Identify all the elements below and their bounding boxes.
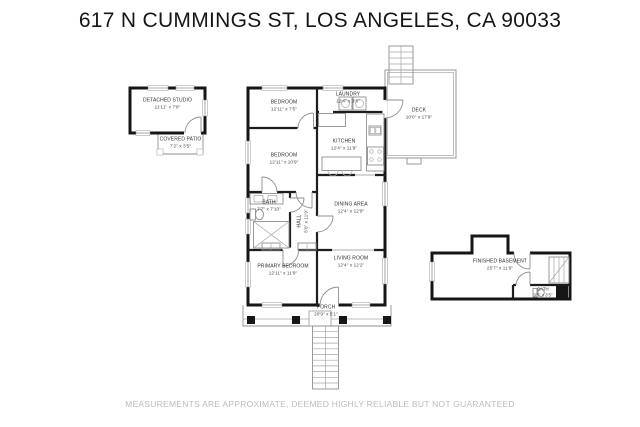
- room-label-laundry: LAUNDRY 12'4" x 3'6": [336, 91, 361, 104]
- room-label-bedroom-top: BEDROOM 12'11" x 7'5": [271, 99, 298, 112]
- floorplan-drawing: [0, 0, 640, 427]
- room-label-hall: HALL 5'0" x 11'9": [296, 209, 309, 233]
- room-label-covered-patio: COVERED PATIO 7'2" x 3'5": [160, 136, 202, 149]
- room-label-deck: DECK 10'0" x 17'9": [406, 107, 433, 120]
- porch-plan: [243, 305, 391, 389]
- disclaimer-text: MEASUREMENTS ARE APPROXIMATE, DEEMED HIG…: [0, 399, 640, 409]
- room-label-bath-basement: BATH 9'5" x 3'5": [534, 287, 553, 298]
- room-label-living-room: LIVING ROOM 12'4" x 12'2": [334, 255, 368, 268]
- room-label-dining-area: DINING AREA 12'4" x 12'9": [334, 201, 367, 214]
- room-label-bedroom-mid: BEDROOM 12'11" x 10'9": [270, 152, 299, 165]
- room-label-bath-main: BATH 7'7" x 7'10": [257, 199, 281, 212]
- room-label-kitchen: KITCHEN 12'4" x 11'9": [331, 138, 357, 151]
- room-label-finished-basement: FINISHED BASEMENT 25'7" x 11'9": [473, 258, 527, 271]
- deck-plan: [385, 46, 456, 164]
- room-label-porch: PORCH 20'9" x 5'1": [314, 304, 338, 317]
- room-label-primary-bedroom: PRIMARY BEDROOM 12'11" x 11'9": [257, 263, 308, 276]
- floorplan-page: 617 N CUMMINGS ST, LOS ANGELES, CA 90033: [0, 0, 640, 427]
- room-label-detached-studio: DETACHED STUDIO 11'11" x 7'8": [143, 97, 192, 110]
